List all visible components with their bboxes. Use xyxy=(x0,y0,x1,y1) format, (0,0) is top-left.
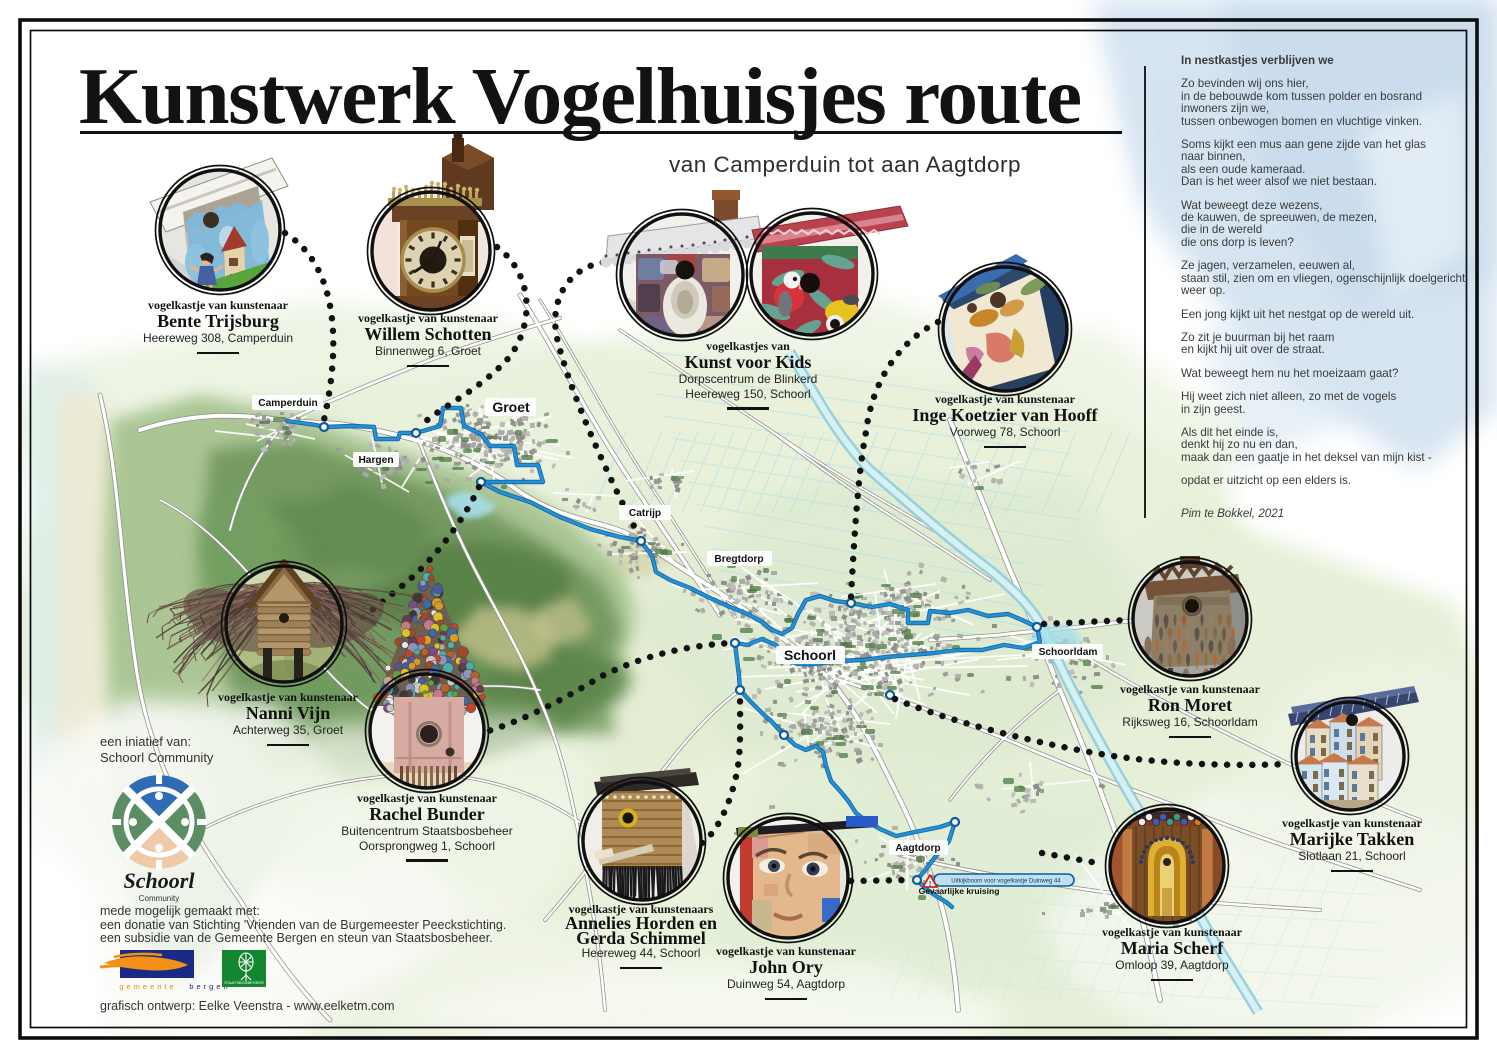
svg-text:gemeente: gemeente xyxy=(119,982,176,991)
svg-text:Schoorl: Schoorl xyxy=(124,868,196,893)
svg-text:Groet: Groet xyxy=(492,399,530,415)
svg-text:Community: Community xyxy=(139,894,179,903)
svg-text:Uitkijkboom voor vogelkastje D: Uitkijkboom voor vogelkastje Duinweg 44 xyxy=(951,879,1061,885)
svg-text:Gevaarlijke kruising: Gevaarlijke kruising xyxy=(919,886,1000,896)
svg-text:Schoorldam: Schoorldam xyxy=(1039,647,1098,658)
svg-text:Aagtdorp: Aagtdorp xyxy=(895,843,940,854)
svg-text:Schoorl: Schoorl xyxy=(784,647,836,663)
svg-text:Camperduin: Camperduin xyxy=(258,398,317,409)
svg-text:STAATSBOSBEHEER: STAATSBOSBEHEER xyxy=(224,980,264,985)
svg-text:Hargen: Hargen xyxy=(358,455,393,466)
svg-text:Catrijp: Catrijp xyxy=(629,508,661,519)
svg-text:Bregtdorp: Bregtdorp xyxy=(714,554,763,565)
